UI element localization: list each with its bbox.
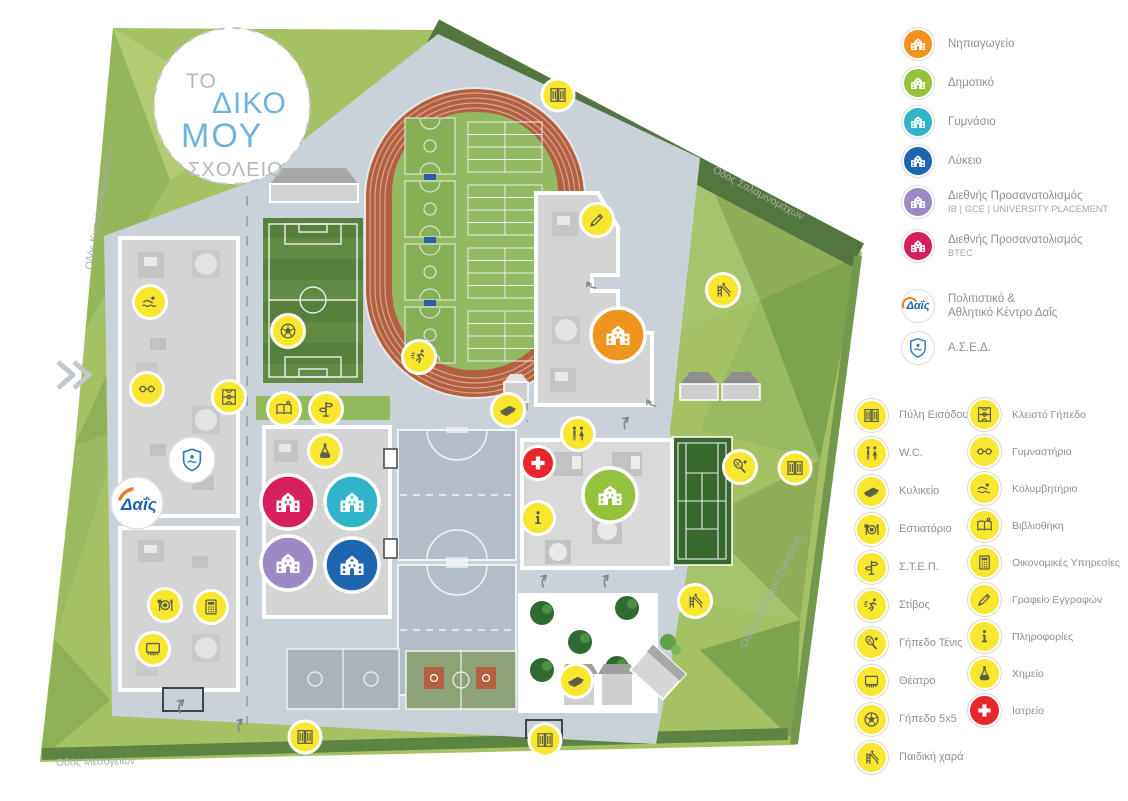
pool-icon bbox=[134, 286, 167, 319]
btec-marker bbox=[261, 475, 315, 529]
legend-label: Πολιτιστικό & Αθλητικό Κέντρο Δαΐς bbox=[948, 292, 1057, 321]
legend-item-chemistry: Χημείο bbox=[968, 655, 1128, 692]
info-icon bbox=[522, 502, 555, 535]
facilities-column-left: Πύλη Εισόδου W.C. Κυλικείο Εστιατόριο Σ.… bbox=[855, 396, 980, 776]
canteen-icon bbox=[560, 665, 593, 698]
soccer-ball-icon bbox=[855, 703, 888, 736]
swimmer-icon bbox=[968, 472, 1001, 505]
medical-cross-icon bbox=[968, 694, 1001, 727]
logo-word-mou: ΜΟΥ bbox=[181, 117, 263, 155]
school-building-icon bbox=[902, 67, 934, 99]
calculator-icon bbox=[195, 591, 228, 624]
legend-item-finance: Οικονομικές Υπηρεσίες bbox=[968, 544, 1128, 581]
legend-label: Λύκειο bbox=[948, 154, 982, 168]
signpost-icon bbox=[855, 551, 888, 584]
legend-item-indoor-court: Κλειστό Γήπεδο bbox=[968, 396, 1128, 433]
legend-item-elementary: Δημοτικό bbox=[902, 67, 1128, 99]
pencil-icon bbox=[968, 583, 1001, 616]
legend-item-playground: Παιδική χαρά bbox=[855, 738, 980, 776]
kindergarten-marker bbox=[591, 308, 645, 362]
flask-icon bbox=[968, 657, 1001, 690]
legend-schools: Νηπιαγωγείο Δημοτικό Γυμνάσιο Λύκειο Διε… bbox=[902, 28, 1128, 371]
middle-school-marker bbox=[325, 475, 379, 529]
gate-icon bbox=[289, 721, 321, 753]
legend-item-dais-center: Δαΐς Πολιτιστικό & Αθλητικό Κέντρο Δαΐς bbox=[902, 288, 1128, 324]
soccer-pitch bbox=[263, 218, 363, 385]
wc-icon bbox=[562, 418, 595, 451]
legend-item-gym: Γυμναστήριο bbox=[968, 433, 1128, 470]
signpost-icon bbox=[310, 393, 343, 426]
ib-marker bbox=[261, 536, 315, 590]
legend-sublabel: IB | GCE | UNIVERSITY PLACEMENT bbox=[948, 204, 1108, 215]
tennis-racket-icon bbox=[724, 451, 757, 484]
legend-item-canteen: Κυλικείο bbox=[855, 472, 980, 510]
logo-word-diko: ΔΙΚΟ bbox=[212, 87, 287, 120]
legend-label: Α.Σ.Ε.Δ. bbox=[948, 341, 991, 355]
legend-item-middle-school: Γυμνάσιο bbox=[902, 106, 1128, 138]
canteen-icon bbox=[492, 394, 525, 427]
legend-label: Διεθνής Προσανατολισμός BTEC bbox=[948, 233, 1083, 260]
legend-item-theater: Θέατρο bbox=[855, 662, 980, 700]
dais-logo: Δαΐς bbox=[902, 290, 934, 322]
track-runner-icon bbox=[403, 341, 436, 374]
dais-logo-text: Δαΐς bbox=[120, 495, 157, 514]
legend-item-info: Πληροφορίες bbox=[968, 618, 1128, 655]
legend-item-pool: Κολυμβητήριο bbox=[968, 470, 1128, 507]
gate-icon bbox=[529, 724, 561, 756]
theater-icon bbox=[855, 665, 888, 698]
legend-item-registry: Γραφείο Εγγραφών bbox=[968, 581, 1128, 618]
legend-label: Γυμνάσιο bbox=[948, 115, 996, 129]
elementary-marker bbox=[583, 468, 637, 522]
runner-icon bbox=[855, 589, 888, 622]
indoor-court-icon bbox=[968, 398, 1001, 431]
school-building-icon bbox=[902, 186, 934, 218]
school-building-icon bbox=[902, 230, 934, 262]
restaurant-icon bbox=[855, 513, 888, 546]
legend-item-pitch-5x5: Γήπεδο 5x5 bbox=[855, 700, 980, 738]
legend-item-high-school: Λύκειο bbox=[902, 145, 1128, 177]
legend-item-step: Σ.Τ.Ε.Π. bbox=[855, 548, 980, 586]
registry-icon bbox=[581, 204, 614, 237]
legend-item-btec: Διεθνής Προσανατολισμός BTEC bbox=[902, 228, 1128, 264]
legend-item-ased: Α.Σ.Ε.Δ. bbox=[902, 332, 1128, 364]
dumbbell-icon bbox=[968, 435, 1001, 468]
playground-icon bbox=[679, 585, 712, 618]
legend-item-restaurant: Εστιατόριο bbox=[855, 510, 980, 548]
chemistry-icon bbox=[309, 435, 342, 468]
wc-icon bbox=[855, 437, 888, 470]
legend-item-library: Βιβλιοθήκη bbox=[968, 507, 1128, 544]
legend-item-gate: Πύλη Εισόδου bbox=[855, 396, 980, 434]
legend-item-ib: Διεθνής Προσανατολισμός IB | GCE | UNIVE… bbox=[902, 184, 1128, 220]
book-icon bbox=[968, 509, 1001, 542]
gym-icon bbox=[131, 373, 164, 406]
restaurant-icon bbox=[149, 589, 182, 622]
door-icon bbox=[855, 399, 888, 432]
legend-item-tennis: Γήπεδο Τένις bbox=[855, 624, 980, 662]
school-building-icon bbox=[902, 106, 934, 138]
school-building-icon bbox=[902, 145, 934, 177]
gate-icon bbox=[779, 452, 811, 484]
legend-item-kindergarten: Νηπιαγωγείο bbox=[902, 28, 1128, 60]
legend-label: Δημοτικό bbox=[948, 76, 994, 90]
legend-item-wc: W.C. bbox=[855, 434, 980, 472]
indoor-court-icon bbox=[213, 381, 246, 414]
info-icon bbox=[968, 620, 1001, 653]
sandwich-icon bbox=[855, 475, 888, 508]
legend-label: Νηπιαγωγείο bbox=[948, 37, 1014, 51]
dais-logo-marker: Δαΐς bbox=[111, 477, 163, 529]
tennis-racket-icon bbox=[855, 627, 888, 660]
gate-icon bbox=[542, 79, 574, 111]
calculator-icon bbox=[968, 546, 1001, 579]
legend-sublabel: BTEC bbox=[948, 248, 1083, 259]
theater-icon bbox=[137, 633, 170, 666]
ased-shield-marker bbox=[169, 437, 215, 483]
high-school-marker bbox=[325, 538, 379, 592]
playground-icon bbox=[707, 274, 740, 307]
tennis-court bbox=[672, 437, 732, 565]
facilities-column-right: Κλειστό Γήπεδο Γυμναστήριο Κολυμβητήριο … bbox=[968, 396, 1128, 729]
soccer-ball-icon bbox=[272, 315, 305, 348]
logo-word-sxoleio: ΣΧΟΛΕΙΟ bbox=[188, 159, 284, 181]
medical-cross-icon bbox=[522, 447, 555, 480]
campus-map: Δαΐς ΤΟ ΔΙΚΟ ΜΟΥ ΣΧΟΛΕΙΟ Οδός Κ bbox=[0, 0, 872, 801]
library-icon bbox=[268, 393, 301, 426]
ased-shield-icon bbox=[902, 332, 934, 364]
playground-icon bbox=[855, 741, 888, 774]
legend-item-infirmary: Ιατρείο bbox=[968, 692, 1128, 729]
legend-label: Διεθνής Προσανατολισμός IB | GCE | UNIVE… bbox=[948, 189, 1108, 216]
legend-item-track: Στίβος bbox=[855, 586, 980, 624]
street-bottom: Οδός Μεσογείων bbox=[56, 755, 136, 769]
school-building-icon bbox=[902, 28, 934, 60]
campaign-logo: ΤΟ ΔΙΚΟ ΜΟΥ ΣΧΟΛΕΙΟ bbox=[154, 28, 310, 184]
